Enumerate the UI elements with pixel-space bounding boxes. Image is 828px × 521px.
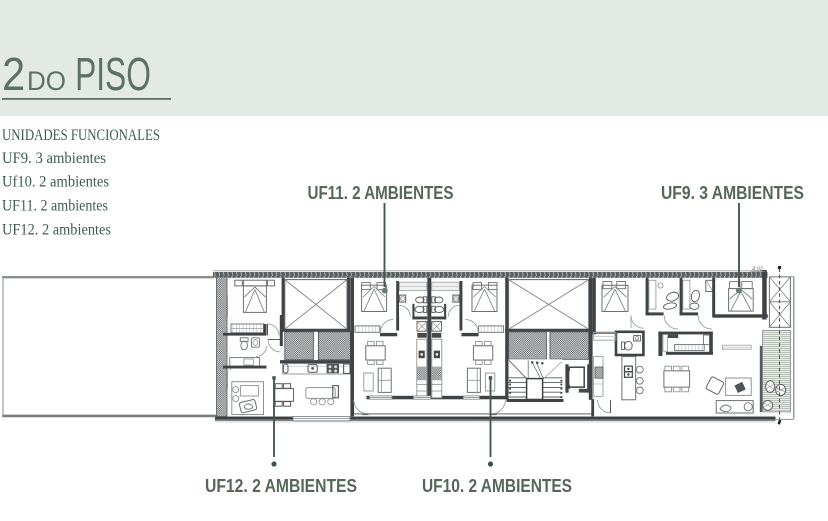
svg-text:UF9. 3 AMBIENTES: UF9. 3 AMBIENTES: [661, 183, 804, 203]
svg-text:UF10. 2 AMBIENTES: UF10. 2 AMBIENTES: [422, 476, 572, 496]
svg-text:DO: DO: [27, 66, 66, 96]
svg-text:Uf10. 2 ambientes: Uf10. 2 ambientes: [2, 174, 109, 191]
svg-text:UF11. 2 ambientes: UF11. 2 ambientes: [2, 198, 108, 215]
svg-text:UF9. 3 ambientes: UF9. 3 ambientes: [2, 150, 106, 167]
svg-text:UNIDADES FUNCIONALES: UNIDADES FUNCIONALES: [2, 127, 160, 144]
svg-text:UF11. 2 AMBIENTES: UF11. 2 AMBIENTES: [308, 183, 454, 203]
svg-text:UF12. 2 ambientes: UF12. 2 ambientes: [2, 222, 111, 239]
svg-text:2: 2: [2, 49, 25, 101]
svg-text:UF12. 2 AMBIENTES: UF12. 2 AMBIENTES: [205, 476, 357, 496]
svg-text:PISO: PISO: [75, 49, 151, 100]
